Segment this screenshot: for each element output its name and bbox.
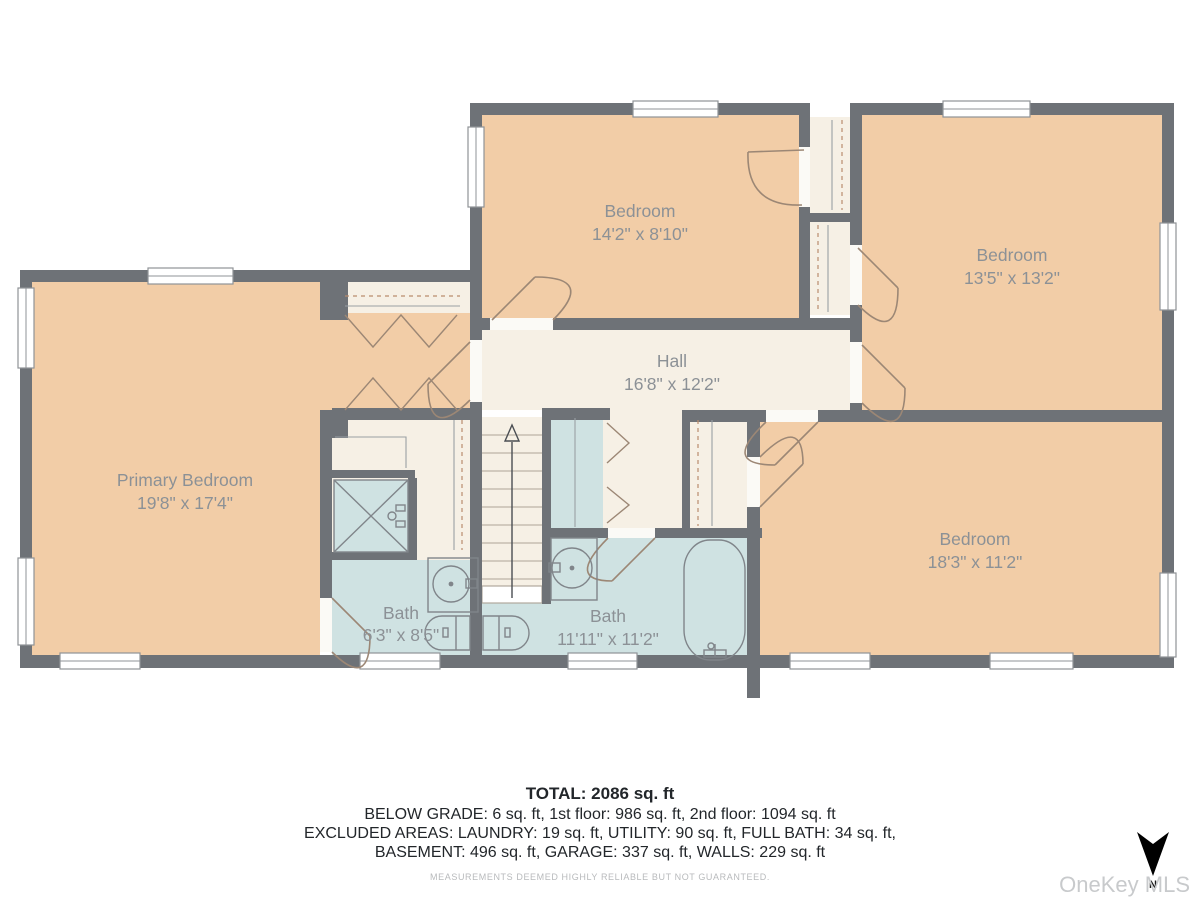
window bbox=[18, 558, 34, 645]
room-dims-bath-large: 11'11" x 11'2" bbox=[557, 629, 659, 649]
room-label-bath-small: Bath bbox=[383, 603, 419, 623]
shower-fixture bbox=[334, 480, 408, 552]
window bbox=[1160, 573, 1176, 657]
watermark: OneKey MLS bbox=[1059, 872, 1190, 898]
window bbox=[1160, 223, 1176, 310]
hall-lower-nook bbox=[603, 410, 682, 528]
window bbox=[790, 653, 870, 669]
room-label-hall: Hall bbox=[657, 351, 687, 371]
floor-plan-page: Bedroom 14'2" x 8'10" Bedroom 13'5" x 13… bbox=[0, 0, 1200, 900]
room-dims-hall: 16'8" x 12'2" bbox=[624, 374, 720, 394]
window bbox=[990, 653, 1073, 669]
total-area: TOTAL: 2086 sq. ft bbox=[0, 784, 1200, 804]
room-label-bedroom-top: Bedroom bbox=[604, 201, 675, 221]
window bbox=[568, 653, 637, 669]
window bbox=[360, 653, 440, 669]
dressing-passage bbox=[320, 313, 470, 412]
room-dims-bedroom-top: 14'2" x 8'10" bbox=[592, 224, 688, 244]
area-line-1: BELOW GRADE: 6 sq. ft, 1st floor: 986 sq… bbox=[0, 806, 1200, 824]
closet-passage-top bbox=[332, 282, 472, 313]
area-line-3: BASEMENT: 496 sq. ft, GARAGE: 337 sq. ft… bbox=[0, 844, 1200, 862]
window bbox=[633, 101, 718, 117]
disclaimer-text: MEASUREMENTS DEEMED HIGHLY RELIABLE BUT … bbox=[0, 872, 1200, 882]
window bbox=[148, 268, 233, 284]
room-label-bedroom-bottom: Bedroom bbox=[939, 529, 1010, 549]
window bbox=[943, 101, 1030, 117]
room-dims-bedroom-right: 13'5" x 13'2" bbox=[964, 268, 1060, 288]
room-dims-bath-small: 6'3" x 8'5" bbox=[363, 625, 440, 645]
room-primary-bedroom bbox=[32, 282, 320, 655]
window bbox=[468, 127, 484, 207]
room-label-primary-bedroom: Primary Bedroom bbox=[117, 470, 253, 490]
closet-bedroom-bottom bbox=[690, 417, 750, 528]
room-dims-primary-bedroom: 19'8" x 17'4" bbox=[137, 493, 233, 513]
window bbox=[60, 653, 140, 669]
area-line-2: EXCLUDED AREAS: LAUNDRY: 19 sq. ft, UTIL… bbox=[0, 825, 1200, 843]
room-label-bedroom-right: Bedroom bbox=[976, 245, 1047, 265]
floor-plan-drawing: Bedroom 14'2" x 8'10" Bedroom 13'5" x 13… bbox=[0, 0, 1200, 770]
room-dims-bedroom-bottom: 18'3" x 11'2" bbox=[928, 552, 1023, 572]
window bbox=[18, 288, 34, 368]
north-arrow-icon bbox=[1137, 832, 1169, 876]
room-label-bath-large: Bath bbox=[590, 606, 626, 626]
area-summary: TOTAL: 2086 sq. ft BELOW GRADE: 6 sq. ft… bbox=[0, 784, 1200, 882]
